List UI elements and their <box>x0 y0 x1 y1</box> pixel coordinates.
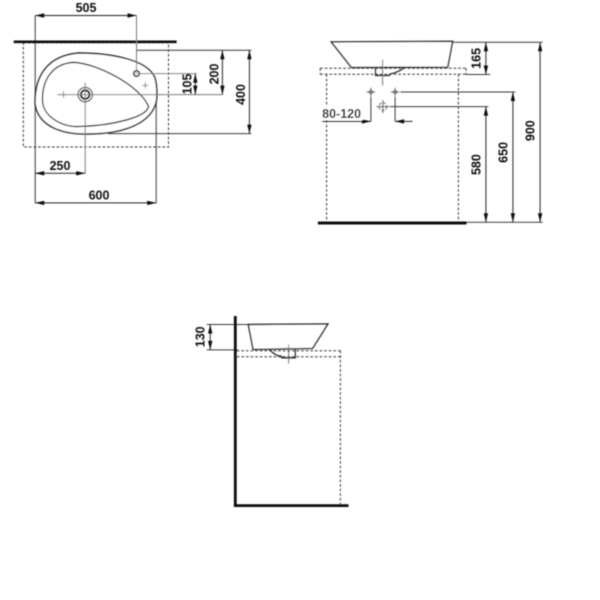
svg-text:80-120: 80-120 <box>322 107 361 121</box>
svg-text:400: 400 <box>234 84 248 105</box>
svg-text:105: 105 <box>181 74 195 95</box>
svg-text:200: 200 <box>207 64 221 85</box>
svg-text:600: 600 <box>89 189 110 203</box>
svg-text:250: 250 <box>50 159 71 173</box>
svg-text:165: 165 <box>469 48 483 69</box>
svg-text:505: 505 <box>76 1 97 15</box>
svg-text:580: 580 <box>469 154 483 175</box>
svg-text:130: 130 <box>193 326 207 347</box>
svg-text:900: 900 <box>524 120 538 141</box>
svg-text:650: 650 <box>496 142 510 163</box>
